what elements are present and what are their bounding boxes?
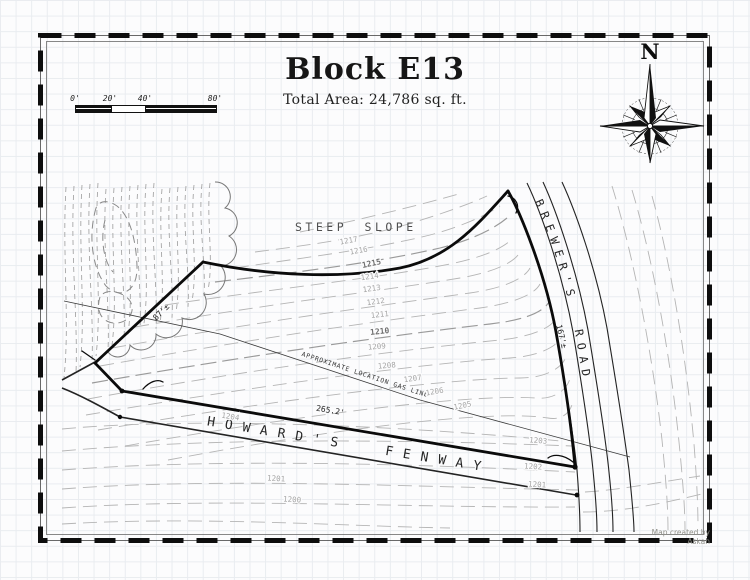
tree-line (108, 182, 237, 357)
scale-segment (76, 106, 111, 112)
contour-label: 1208 (377, 360, 396, 371)
contour-label: 1211 (370, 309, 389, 320)
steep-slope-label: STEEP SLOPE (295, 220, 417, 234)
corner-hook (548, 455, 573, 462)
dimension-west-boundary: 87'± (151, 302, 171, 322)
contour-label: 1213 (362, 283, 381, 294)
contour-label: 1201 (528, 480, 547, 490)
contour-label: 1201 (267, 474, 286, 484)
contour-label: 1205 (453, 399, 473, 412)
contour-label: 1215 (361, 257, 382, 270)
survey-drawing: N STEEP SLOPE HOWARD'S FENWAY BREWER'S R… (0, 0, 750, 580)
brewers-road-text: BREWER'S ROAD (532, 197, 594, 384)
scale-bar: 0' 20' 40' 80' (75, 94, 217, 114)
scale-segment (146, 106, 216, 112)
monument-dot (572, 464, 577, 469)
contour-label: 1206 (425, 385, 445, 397)
contour-label: 1210 (370, 326, 390, 337)
contour-label: 1200 (283, 495, 302, 505)
contour-label: 1217 (339, 235, 358, 247)
road-howards-fenway (62, 362, 576, 495)
contour-label: 1207 (403, 373, 422, 384)
monument-dot (120, 389, 125, 394)
contour-label: 1203 (529, 435, 548, 446)
contour-label: 1214 (360, 271, 380, 282)
contour-label: 1202 (524, 462, 543, 472)
monument-dot (575, 493, 580, 498)
contour-label: 1216 (349, 244, 369, 256)
slope-hachures (64, 183, 210, 378)
map-credit: Map created by Askan (645, 528, 710, 546)
contour-label: 1209 (367, 341, 386, 352)
contour-lines (62, 186, 702, 530)
scale-bar-graphic (75, 105, 217, 113)
scale-segment (111, 106, 146, 112)
brewers-road-label: BREWER'S ROAD (532, 197, 594, 384)
scale-label: 0' (70, 94, 80, 103)
plat-sheet: N STEEP SLOPE HOWARD'S FENWAY BREWER'S R… (0, 0, 750, 580)
compass-rose: N (600, 39, 704, 163)
scale-label: 80' (208, 94, 222, 103)
north-letter: N (640, 39, 659, 64)
parcel-boundary (82, 191, 579, 497)
corner-tick (82, 351, 95, 360)
scale-label: 40' (138, 94, 152, 103)
monument-dot (118, 415, 122, 419)
scale-label: 20' (103, 94, 117, 103)
gas-line (64, 301, 630, 457)
